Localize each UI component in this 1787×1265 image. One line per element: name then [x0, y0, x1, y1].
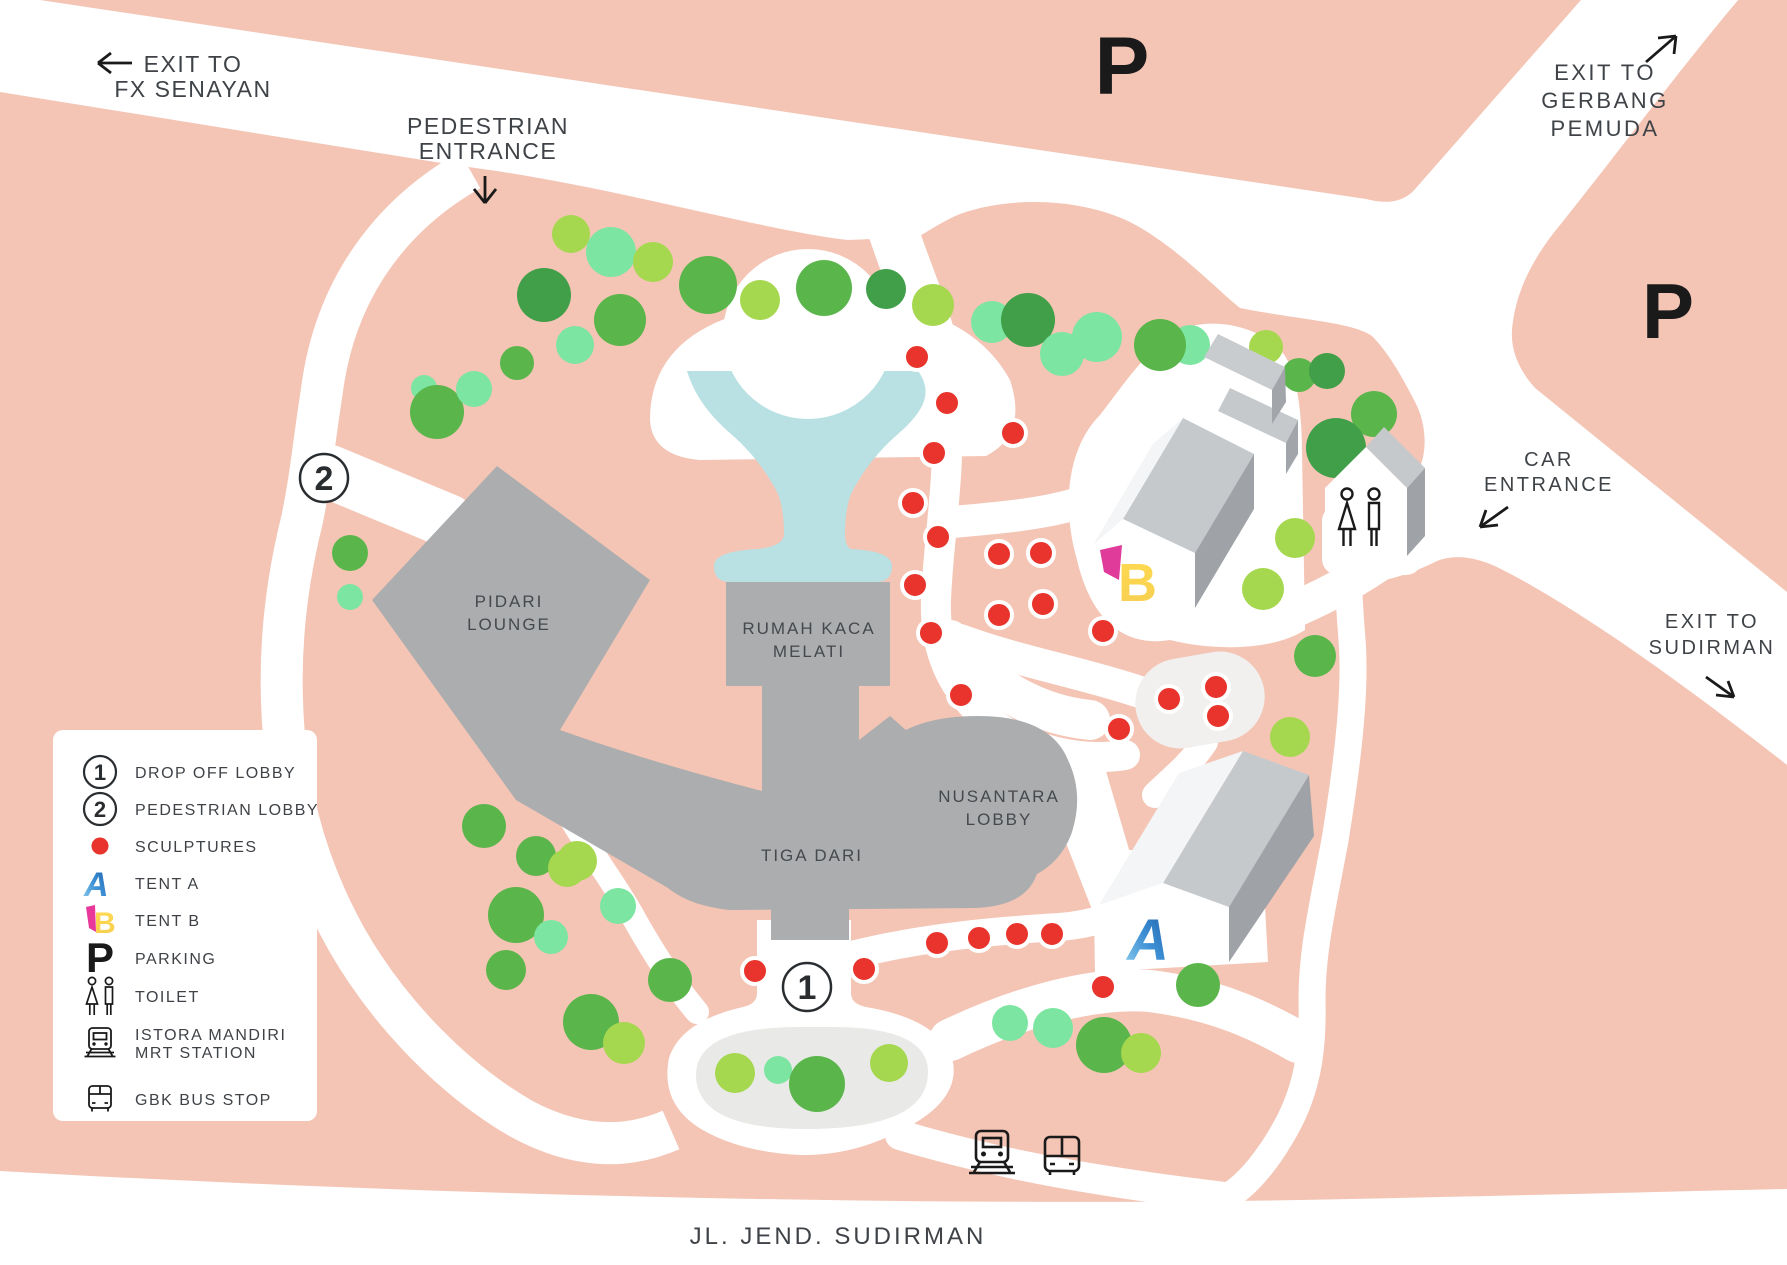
svg-text:A: A: [83, 866, 109, 904]
svg-text:TIGA DARI: TIGA DARI: [761, 846, 863, 865]
svg-text:DROP OFF LOBBY: DROP OFF LOBBY: [135, 765, 296, 782]
svg-text:GBK BUS STOP: GBK BUS STOP: [135, 1092, 272, 1109]
svg-text:2: 2: [94, 797, 106, 822]
svg-text:1: 1: [798, 969, 817, 1007]
svg-text:A: A: [1125, 908, 1169, 973]
svg-text:SCULPTURES: SCULPTURES: [135, 839, 258, 856]
svg-text:TENT A: TENT A: [135, 876, 200, 893]
svg-text:PEDESTRIAN LOBBY: PEDESTRIAN LOBBY: [135, 802, 319, 819]
svg-text:PEDESTRIANENTRANCE: PEDESTRIANENTRANCE: [407, 113, 569, 164]
svg-text:2: 2: [315, 460, 334, 498]
svg-text:PARKING: PARKING: [135, 951, 216, 968]
svg-text:P: P: [1642, 267, 1694, 355]
svg-text:JL. JEND. SUDIRMAN: JL. JEND. SUDIRMAN: [690, 1223, 987, 1250]
svg-text:B: B: [1118, 553, 1157, 613]
svg-text:EXIT TOGERBANGPEMUDA: EXIT TOGERBANGPEMUDA: [1541, 60, 1669, 141]
svg-text:1: 1: [94, 760, 106, 785]
svg-text:TENT B: TENT B: [135, 913, 201, 930]
svg-text:P: P: [1095, 21, 1150, 112]
svg-text:P: P: [86, 934, 114, 981]
svg-text:TOILET: TOILET: [135, 989, 200, 1006]
